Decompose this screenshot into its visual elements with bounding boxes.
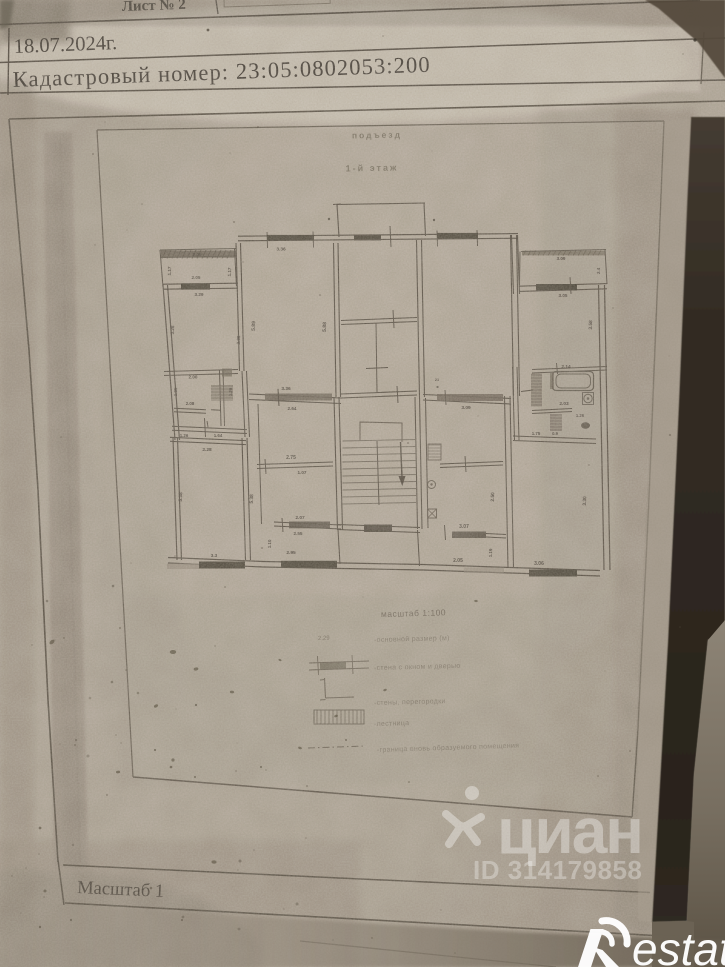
svg-text:estate: estate	[632, 923, 725, 967]
svg-text:ID 314179858: ID 314179858	[473, 855, 642, 885]
